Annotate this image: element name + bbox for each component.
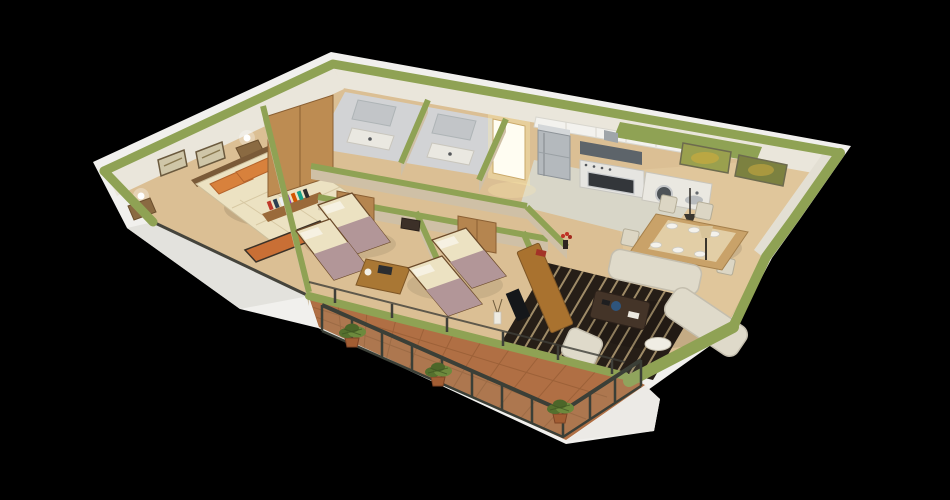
wall-lamp-right (244, 135, 251, 142)
sink-faucet (695, 191, 698, 194)
bathroom-1-faucet (368, 137, 372, 141)
artwork-right-detail (748, 164, 774, 176)
bathroom-2-faucet (448, 152, 452, 156)
desk-lamp (365, 269, 372, 276)
door-floor-glow (488, 182, 536, 198)
render-canvas (0, 0, 950, 500)
artwork-left-detail (691, 152, 719, 164)
floor-plan-stage (0, 0, 950, 500)
wall-lamp-left (138, 193, 145, 200)
round-side-table (645, 338, 671, 351)
blue-bowl (611, 301, 621, 311)
